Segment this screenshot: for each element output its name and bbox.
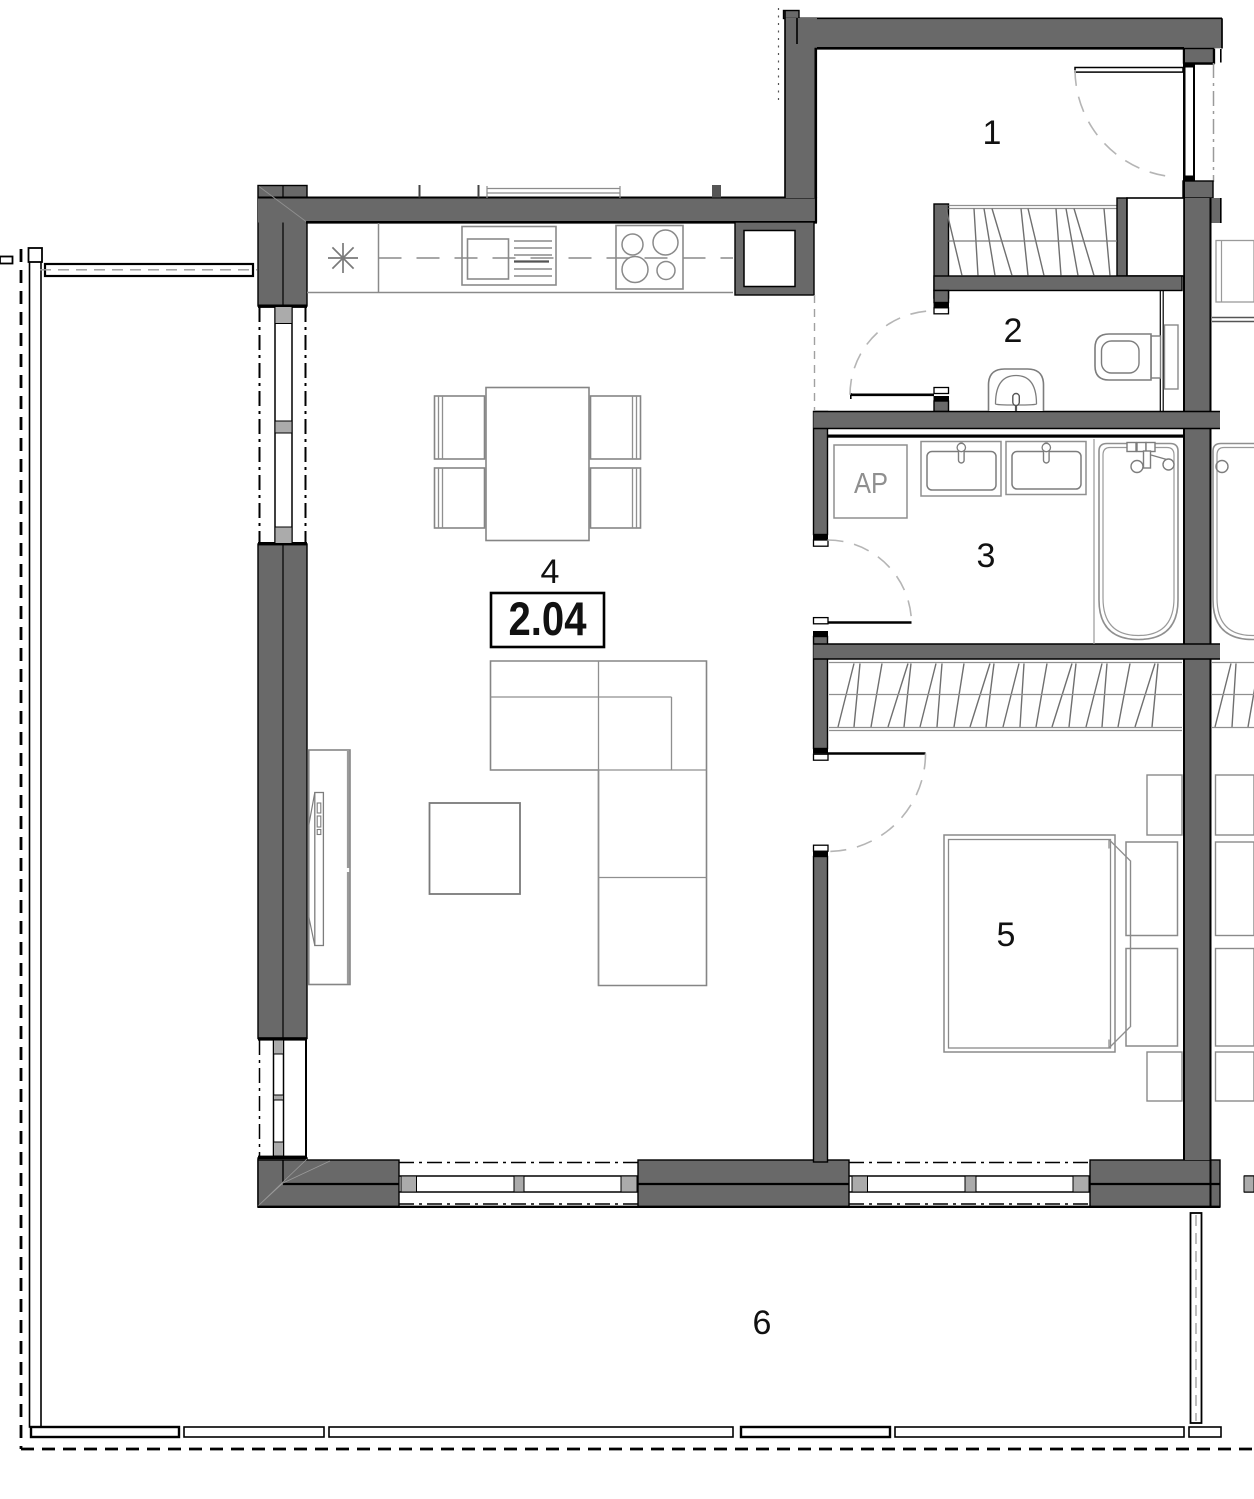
svg-text:AP: AP xyxy=(854,468,888,500)
svg-text:6: 6 xyxy=(753,1304,772,1342)
svg-text:3: 3 xyxy=(977,537,996,575)
svg-text:4: 4 xyxy=(541,553,560,591)
svg-text:5: 5 xyxy=(997,916,1016,954)
svg-text:2: 2 xyxy=(1004,312,1023,350)
svg-text:2.04: 2.04 xyxy=(509,592,587,645)
svg-text:1: 1 xyxy=(983,114,1002,152)
